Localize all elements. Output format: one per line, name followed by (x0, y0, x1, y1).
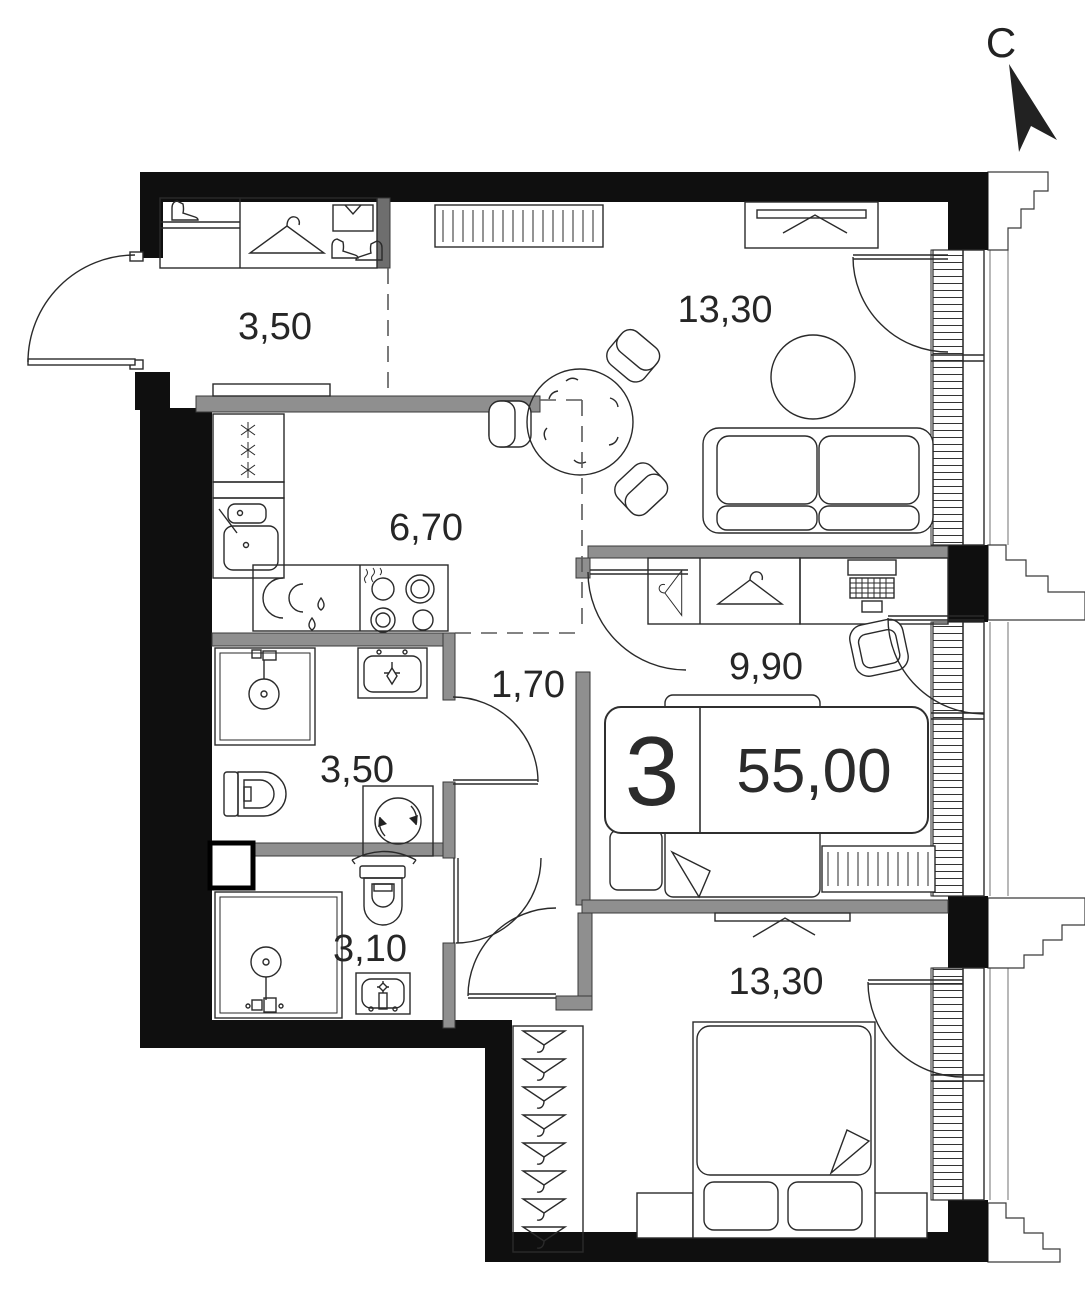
stove-icon (365, 568, 435, 632)
hall-wardrobe (160, 198, 382, 268)
sofa (703, 428, 933, 533)
badge-total-area: 55,00 (736, 737, 891, 806)
laptop-icon (848, 560, 896, 612)
hall-bench (213, 384, 330, 396)
windows (931, 250, 984, 1200)
nightstand (637, 1193, 693, 1238)
pouf (771, 335, 855, 419)
shower-icon (215, 648, 315, 745)
area-label-kitchen: 6,70 (389, 507, 463, 549)
hanger-icon (718, 572, 782, 604)
toilet-icon (360, 866, 405, 925)
facade-step-mid1 (988, 545, 1085, 620)
entry-door (28, 255, 135, 365)
north-arrow: С (986, 19, 1057, 152)
radiator-icon (435, 205, 603, 247)
area-label-bedroom: 9,90 (729, 646, 803, 688)
entry-jamb-top (130, 252, 143, 261)
toilet-icon (224, 772, 286, 816)
bedroom-door (588, 570, 688, 670)
area-label-living-room: 13,30 (677, 289, 772, 331)
shirt-icon (333, 205, 373, 231)
tv-icon (745, 202, 878, 248)
hanger-icon (523, 1143, 565, 1164)
hanger-icon (250, 217, 324, 253)
facade-step-mid2 (988, 898, 1085, 968)
pillow (704, 1182, 778, 1230)
area-label-bedroom-2: 13,30 (728, 961, 823, 1003)
chair (610, 458, 672, 520)
window-living-room (931, 250, 984, 545)
hanger-icon (523, 1059, 565, 1080)
dish-rack-icon (263, 578, 324, 630)
shower-icon (215, 892, 342, 1018)
facade-step-top (988, 172, 1048, 250)
north-label: С (986, 19, 1016, 66)
desk-chair (847, 617, 911, 679)
floor-plan-page: 3,50 13,30 6,70 1,70 9,90 3,50 3,10 13,3… (0, 0, 1085, 1303)
nightstand (610, 830, 662, 890)
dining-table (527, 369, 633, 475)
zone-boundary-dashed (388, 268, 582, 633)
badge-rooms-count: 3 (625, 716, 680, 826)
wardrobe (648, 558, 800, 624)
window-bedroom-2 (931, 968, 984, 1200)
hanger-icon (523, 1031, 565, 1052)
hanger-icon (523, 1171, 565, 1192)
chair (602, 325, 664, 387)
area-label-bathroom: 3,50 (320, 749, 394, 791)
hanger-icon (523, 1087, 565, 1108)
area-label-shower-room: 3,10 (333, 928, 407, 970)
dining-set (489, 325, 672, 520)
area-label-corridor: 1,70 (491, 664, 565, 706)
washbasin-icon (358, 648, 427, 698)
fridge-icon (213, 414, 284, 482)
nightstand (873, 1193, 927, 1238)
bedroom2-furniture (513, 913, 927, 1252)
wardrobe-jamb (377, 198, 390, 268)
floor-plan: 3,50 13,30 6,70 1,70 9,90 3,50 3,10 13,3… (0, 0, 1085, 1303)
wardrobe (513, 1026, 583, 1252)
boot-icon (332, 239, 358, 258)
washbasin-icon (356, 973, 410, 1014)
radiator-icon (822, 846, 935, 892)
window-bedroom (931, 622, 984, 896)
hanger-icon (523, 1199, 565, 1220)
hanger-icon (659, 571, 682, 616)
wall-niche (210, 843, 253, 888)
pillow (788, 1182, 862, 1230)
kitchen-counter (213, 482, 284, 498)
boot-icon (172, 201, 198, 220)
living-room-furniture (435, 202, 933, 533)
bathroom-door (453, 697, 538, 784)
hanger-icon (523, 1115, 565, 1136)
north-arrow-icon (1009, 64, 1057, 152)
facade-step-bottom (988, 1203, 1060, 1262)
tv-icon (715, 913, 850, 937)
facade-elements (988, 172, 1085, 1262)
chair (489, 401, 531, 447)
area-label-hallway: 3,50 (238, 306, 312, 348)
kitchen-sink-icon (213, 498, 284, 578)
info-badge: 3 55,00 (605, 707, 928, 833)
